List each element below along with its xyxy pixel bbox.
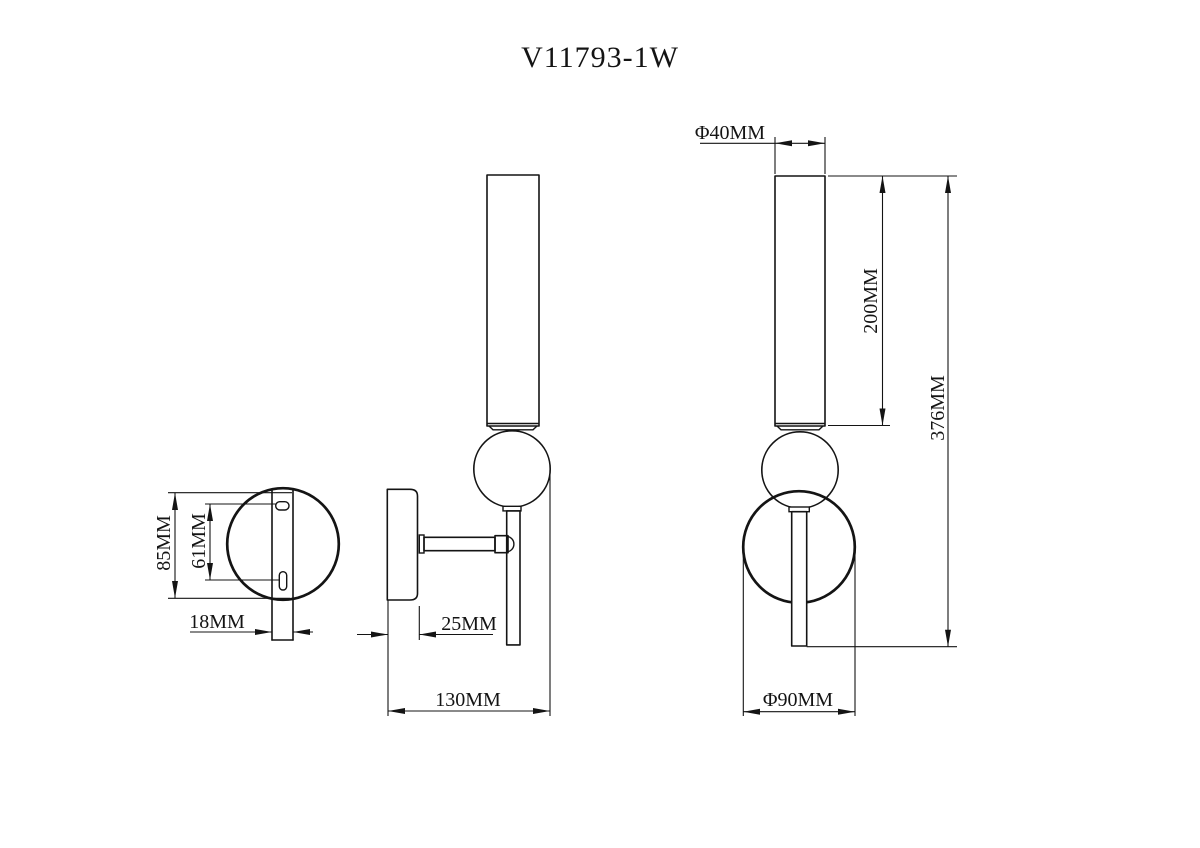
view-front: Φ40MM 200MM 376MM Φ90MM xyxy=(695,122,957,716)
support-arm-side xyxy=(419,535,514,553)
screw-slot-top xyxy=(276,502,289,510)
dim-label-130mm: 130MM xyxy=(435,689,501,711)
dim-25mm: 25MM xyxy=(357,606,497,640)
backplate-circle-left-view xyxy=(227,488,339,600)
technical-drawing-canvas: V11793-1W 85MM 61MM xyxy=(0,0,1200,848)
glass-tube-side xyxy=(487,175,539,430)
lower-rod-front xyxy=(792,512,807,646)
screw-slot-bottom xyxy=(279,572,286,590)
dim-label-90mm: Φ90MM xyxy=(763,689,833,711)
dim-85mm: 85MM xyxy=(153,493,292,599)
drawing-title: V11793-1W xyxy=(521,41,679,74)
mounting-strip xyxy=(272,490,293,641)
glass-tube-front xyxy=(775,176,825,430)
lower-rod-side xyxy=(507,511,520,645)
dim-label-25mm: 25MM xyxy=(441,613,497,635)
dim-label-200mm: 200MM xyxy=(860,268,882,334)
dim-200mm: 200MM xyxy=(828,176,890,426)
dim-label-18mm: 18MM xyxy=(189,611,245,633)
sphere-front xyxy=(762,432,838,508)
dim-130mm: 130MM xyxy=(388,470,550,716)
technical-drawing-page: V11793-1W 85MM 61MM xyxy=(0,0,1200,848)
dim-label-85mm: 85MM xyxy=(153,515,175,571)
dim-label-376mm: 376MM xyxy=(927,375,949,441)
dim-label-61mm: 61MM xyxy=(188,513,210,569)
wall-plate-side xyxy=(387,489,417,600)
view-bracket-front: 85MM 61MM 18MM xyxy=(153,488,339,640)
dim-label-40mm: Φ40MM xyxy=(695,122,765,144)
dim-18mm: 18MM xyxy=(189,611,313,635)
sphere-side xyxy=(474,431,550,507)
view-side: 25MM 130MM xyxy=(357,175,550,716)
dim-40mm-diameter: Φ40MM xyxy=(695,122,825,174)
